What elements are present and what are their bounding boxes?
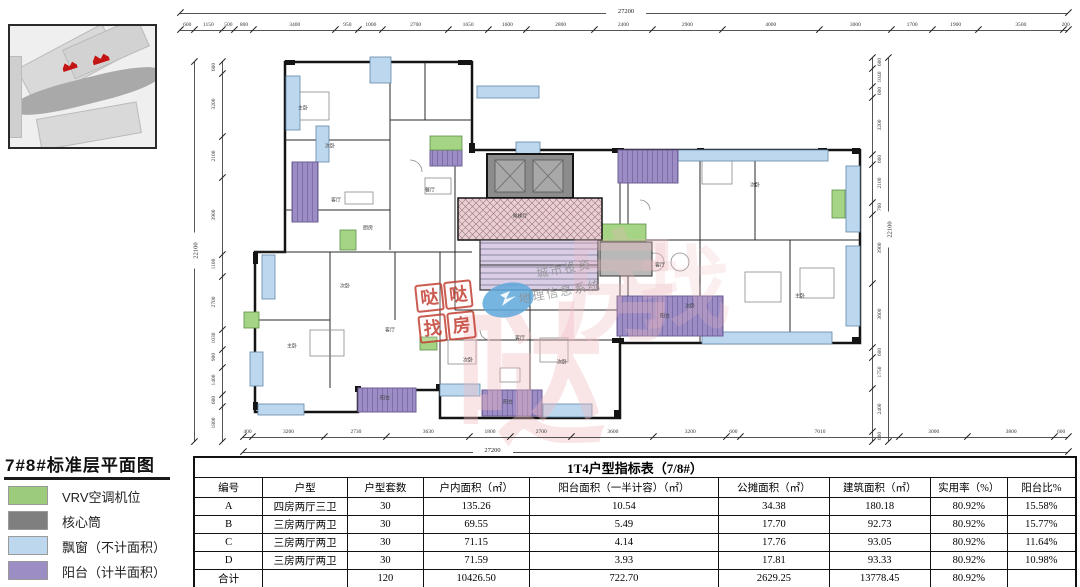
table-cell: B xyxy=(194,516,263,534)
table-cell: 四房两厅三卫 xyxy=(263,498,348,516)
table-cell: 92.73 xyxy=(829,516,930,534)
stamp-char: 哒 xyxy=(414,282,445,313)
table-title: 1T4户型指标表（7/8#） xyxy=(194,457,1076,478)
table-cell: 2629.25 xyxy=(719,570,829,587)
table-cell: 69.55 xyxy=(423,516,529,534)
table-cell: 17.70 xyxy=(719,516,829,534)
table-cell: 三房两厅两卫 xyxy=(263,516,348,534)
table-cell: 15.58% xyxy=(1007,498,1076,516)
table-header-cell: 户内面积（㎡） xyxy=(423,478,529,498)
table-cell: 4.14 xyxy=(529,534,719,552)
table-cell xyxy=(263,570,348,587)
legend-swatch xyxy=(8,486,48,505)
table-cell: A xyxy=(194,498,263,516)
table-header-cell: 阳台比% xyxy=(1007,478,1076,498)
table-cell: 合计 xyxy=(194,570,263,587)
table-cell: 10426.50 xyxy=(423,570,529,587)
table-cell: 30 xyxy=(347,516,423,534)
table-cell: 17.81 xyxy=(719,552,829,570)
table-cell: 80.92% xyxy=(930,552,1007,570)
legend-item-label: 核心筒 xyxy=(62,512,101,531)
table-cell: 93.33 xyxy=(829,552,930,570)
table-row: D三房两厅两卫3071.593.9317.8193.3380.92%10.98% xyxy=(194,552,1076,570)
table-cell: 71.59 xyxy=(423,552,529,570)
stamp-char: 哒 xyxy=(443,279,474,310)
table-cell: 13778.45 xyxy=(829,570,930,587)
table-cell: 17.76 xyxy=(719,534,829,552)
table-row: 合计12010426.50722.702629.2513778.4580.92% xyxy=(194,570,1076,587)
legend-swatch xyxy=(8,511,48,530)
table-row: B三房两厅两卫3069.555.4917.7092.7380.92%15.77% xyxy=(194,516,1076,534)
table-cell: 11.64% xyxy=(1007,534,1076,552)
table-cell: D xyxy=(194,552,263,570)
legend-item-label: 阳台（计半面积） xyxy=(62,562,166,581)
table-cell xyxy=(1007,570,1076,587)
table-header-cell: 公摊面积（㎡） xyxy=(719,478,829,498)
legend-underline xyxy=(4,477,170,480)
table-cell: 3.93 xyxy=(529,552,719,570)
watermark-stamp: 哒 哒 找 房 xyxy=(414,279,478,344)
table-header-cell: 建筑面积（㎡） xyxy=(829,478,930,498)
table-cell: 120 xyxy=(347,570,423,587)
table-cell: 10.54 xyxy=(529,498,719,516)
table-cell: 5.49 xyxy=(529,516,719,534)
table-cell: 80.92% xyxy=(930,534,1007,552)
table-cell: 30 xyxy=(347,498,423,516)
legend-item-label: VRV空调机位 xyxy=(62,487,141,506)
table-cell: 722.70 xyxy=(529,570,719,587)
table-cell: C xyxy=(194,534,263,552)
table-cell: 80.92% xyxy=(930,516,1007,534)
table-header-cell: 户型套数 xyxy=(347,478,423,498)
table-header-cell: 编号 xyxy=(194,478,263,498)
stamp-char: 房 xyxy=(446,310,477,341)
table-cell: 三房两厅两卫 xyxy=(263,534,348,552)
table-header-cell: 实用率（%） xyxy=(930,478,1007,498)
legend-swatch xyxy=(8,561,48,580)
table-cell: 15.77% xyxy=(1007,516,1076,534)
table-cell: 30 xyxy=(347,552,423,570)
table-cell: 135.26 xyxy=(423,498,529,516)
legend-swatch xyxy=(8,536,48,555)
table-row: C三房两厅两卫3071.154.1417.7693.0580.92%11.64% xyxy=(194,534,1076,552)
table-cell: 180.18 xyxy=(829,498,930,516)
table-header-cell: 阳台面积（一半计容）（㎡） xyxy=(529,478,719,498)
table-row: A四房两厅三卫30135.2610.5434.38180.1880.92%15.… xyxy=(194,498,1076,516)
table-cell: 93.05 xyxy=(829,534,930,552)
table-cell: 34.38 xyxy=(719,498,829,516)
table-cell: 10.98% xyxy=(1007,552,1076,570)
table-cell: 80.92% xyxy=(930,498,1007,516)
legend-item-label: 飘窗（不计面积） xyxy=(62,537,166,556)
table-cell: 71.15 xyxy=(423,534,529,552)
floorplan-sheet: 哒 房 找 哒 哒 找 房 城市投资 地理信息系统 27200600115050… xyxy=(0,0,1080,587)
unit-index-table: 1T4户型指标表（7/8#）编号户型户型套数户内面积（㎡）阳台面积（一半计容）（… xyxy=(193,456,1077,587)
table-cell: 80.92% xyxy=(930,570,1007,587)
stamp-char: 找 xyxy=(417,313,448,344)
table-cell: 30 xyxy=(347,534,423,552)
legend-title: 7#8#标准层平面图 xyxy=(5,451,155,476)
svg-text:找: 找 xyxy=(640,240,730,340)
table-cell: 三房两厅两卫 xyxy=(263,552,348,570)
table-header-cell: 户型 xyxy=(263,478,348,498)
